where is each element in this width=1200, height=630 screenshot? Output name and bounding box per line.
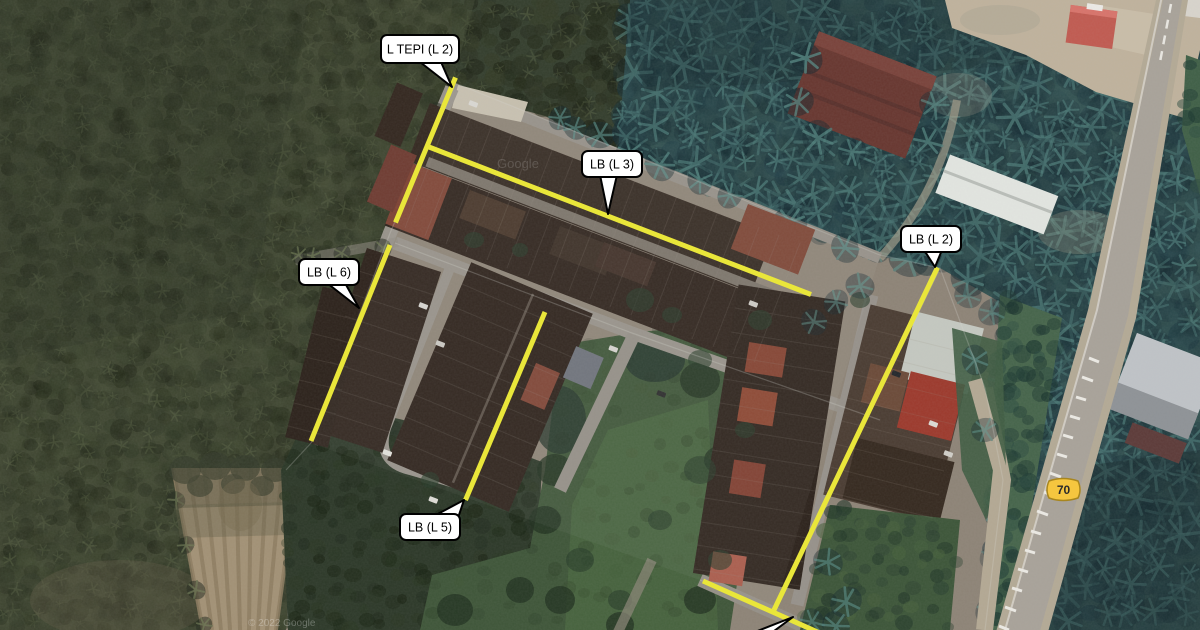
svg-text:L TEPI (L 2): L TEPI (L 2) [387, 43, 453, 57]
svg-text:LB (L 6): LB (L 6) [307, 266, 351, 280]
svg-text:© 2022 Google: © 2022 Google [248, 618, 316, 629]
svg-text:LB (L 5): LB (L 5) [408, 521, 452, 535]
svg-text:70: 70 [1057, 483, 1071, 497]
svg-text:LB (L 2): LB (L 2) [909, 233, 953, 247]
svg-text:Google: Google [497, 156, 539, 171]
svg-text:LB (L 3): LB (L 3) [590, 158, 634, 172]
